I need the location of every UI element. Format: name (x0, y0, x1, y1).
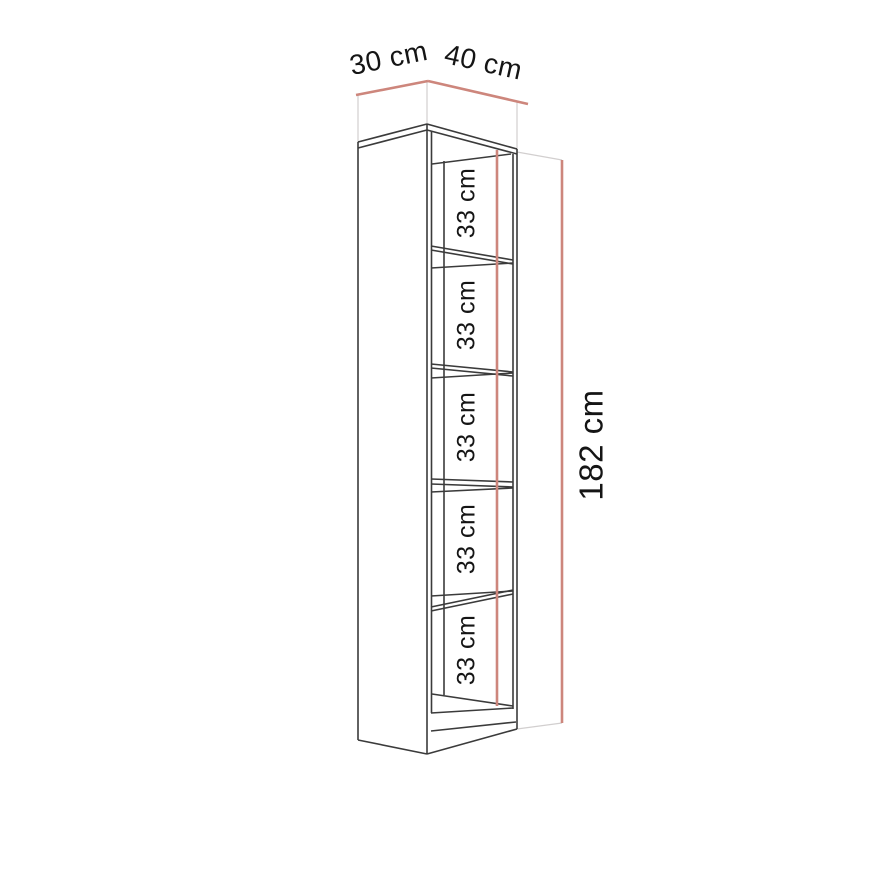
bookcase-edge-line (432, 154, 511, 164)
dimension-line (428, 81, 528, 104)
shelf-dimension-label-2: 33 cm (453, 280, 481, 351)
width-dimension-label: 40 cm (442, 38, 526, 85)
bookcase-edge-line (358, 740, 427, 754)
depth-dimension-label: 30 cm (347, 35, 430, 81)
shelf-dimension-label-4: 33 cm (453, 504, 481, 575)
bookcase-edge-line (432, 694, 513, 706)
bookcase-edge-line (431, 708, 513, 713)
bookcase-outline (358, 124, 517, 754)
shelf-dimension-label-3: 33 cm (453, 392, 481, 463)
extension-line (517, 152, 562, 160)
bookcase-edge-line (427, 124, 517, 149)
shelf-dimension-label-1: 33 cm (453, 168, 481, 239)
dimension-line (356, 81, 428, 95)
bookcase-edge-line (427, 130, 517, 154)
bookcase-dimension-diagram: 30 cm40 cm182 cm33 cm33 cm33 cm33 cm33 c… (0, 0, 880, 880)
bookcase-edge-line (427, 729, 517, 754)
diagram-canvas: 30 cm40 cm182 cm33 cm33 cm33 cm33 cm33 c… (0, 0, 880, 880)
dimension-labels: 30 cm40 cm182 cm33 cm33 cm33 cm33 cm33 c… (347, 35, 610, 685)
bookcase-edge-line (431, 722, 516, 731)
extension-line (517, 723, 562, 729)
height-dimension-label: 182 cm (573, 389, 610, 500)
shelf-dimension-label-5: 33 cm (453, 615, 481, 686)
